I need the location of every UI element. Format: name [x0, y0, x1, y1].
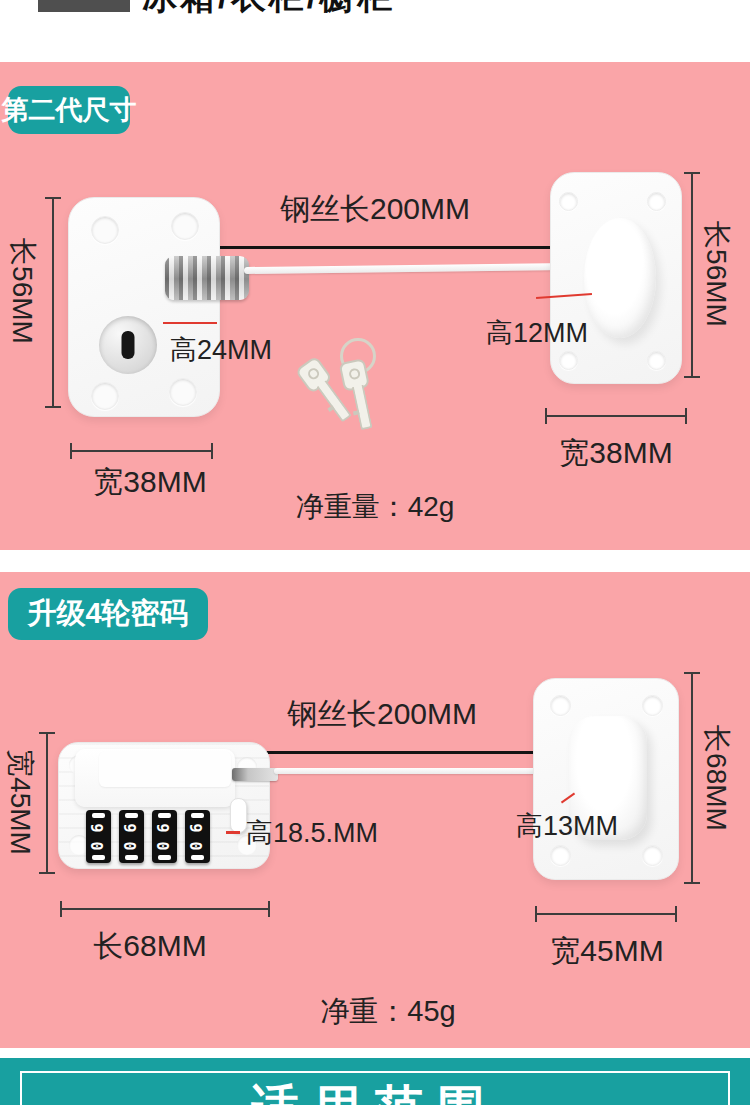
- net-weight-label-2: 净重：45g: [320, 992, 455, 1032]
- section1-title-badge: 第二代尺寸: [8, 86, 130, 134]
- code-dial-wheel: 6 0: [119, 810, 144, 863]
- wire-length-label-1: 钢丝长200MM: [280, 189, 470, 230]
- code-dial-wheel: 6 0: [86, 810, 111, 863]
- dial-digit: 6: [124, 823, 140, 832]
- dim-line-left-1: [52, 197, 54, 408]
- screw-hole: [169, 378, 197, 406]
- screw-hole: [647, 192, 666, 211]
- dim-line-bottom-right-1: [545, 415, 687, 417]
- steel-cable-1: [244, 263, 574, 274]
- dial-digit: 0: [190, 841, 206, 850]
- latch-button: [230, 798, 247, 833]
- screw-hole: [550, 695, 571, 716]
- code-dials: 6 0 6 0 6 0 6 0: [86, 810, 210, 863]
- screw-hole: [559, 192, 578, 211]
- side-length-label-right-2: 长68MM: [697, 725, 735, 831]
- dial-digit: 0: [157, 841, 173, 850]
- section-gen2-dimensions: 第二代尺寸 钢丝长200MM 高24MM: [0, 62, 750, 550]
- net-weight-label-1: 净重量：42g: [296, 488, 455, 526]
- dial-digit: 0: [91, 841, 107, 850]
- screw-hole: [642, 695, 663, 716]
- side-width-label-left-2: 宽45MM: [1, 749, 39, 855]
- product-dimension-infographic: 冰箱/衣柜/橱柜 第二代尺寸 钢丝长200MM 高24MM: [0, 0, 750, 1105]
- anchor-plate-2: [533, 678, 679, 880]
- wire-length-label-2: 钢丝长200MM: [287, 694, 477, 735]
- keyhole: [99, 316, 157, 374]
- cable-pin: [232, 768, 278, 781]
- top-clipped-text: 冰箱/衣柜/橱柜: [142, 0, 395, 20]
- combo-lock-flap: [99, 751, 231, 787]
- length-label-bottom-2: 长68MM: [93, 926, 206, 967]
- bottom-banner: 适用范围: [0, 1058, 750, 1105]
- lock-height-label-1: 高24MM: [170, 332, 272, 368]
- screw-hole: [559, 351, 578, 370]
- wire-pointer-line-2: [228, 751, 538, 754]
- side-length-label-right-1: 长56MM: [697, 221, 735, 327]
- section-gap: [0, 550, 750, 572]
- screw-hole: [91, 216, 119, 244]
- top-clipped-label-box: [38, 0, 130, 12]
- screw-hole: [550, 845, 571, 866]
- width-label-right-1: 宽38MM: [559, 433, 672, 474]
- dim-line-left-2: [46, 732, 48, 874]
- dial-digit: 0: [124, 841, 140, 850]
- keyed-lock-plate: [68, 197, 220, 417]
- anchor-plate-1: [550, 172, 682, 384]
- section2-title-badge: 升级4轮密码: [8, 588, 208, 640]
- anchor-height-label-1: 高12MM: [486, 315, 588, 351]
- dim-line-bottom-left-1: [70, 450, 213, 452]
- height-pointer-red-3: [226, 831, 240, 834]
- code-dial-wheel: 6 0: [152, 810, 177, 863]
- anchor-dome-1: [584, 218, 656, 338]
- screw-hole: [91, 382, 119, 410]
- wire-pointer-line-1: [173, 246, 577, 249]
- dim-line-right-1: [691, 172, 693, 378]
- cable-connector-barrel: [165, 256, 249, 300]
- top-clipped-strip: 冰箱/衣柜/橱柜: [0, 0, 750, 62]
- width-label-bottom-2: 宽45MM: [550, 931, 663, 972]
- section-gap: [0, 1048, 750, 1058]
- anchor-height-label-2: 高13MM: [516, 808, 618, 844]
- dim-line-bottom-right-2: [535, 913, 677, 915]
- dial-digit: 6: [190, 823, 206, 832]
- dim-line-bottom-left-2: [60, 908, 270, 910]
- screw-hole: [647, 351, 666, 370]
- code-dial-wheel: 6 0: [185, 810, 210, 863]
- section-4digit-code: 升级4轮密码 钢丝长200MM 6 0 6 0 6 0: [0, 572, 750, 1048]
- lock-height-label-2: 高18.5.MM: [246, 815, 378, 851]
- steel-cable-2: [274, 768, 566, 774]
- width-label-left-1: 宽38MM: [93, 462, 206, 503]
- screw-hole: [642, 845, 663, 866]
- banner-title: 适用范围: [251, 1084, 499, 1105]
- screw-hole: [171, 212, 199, 240]
- dim-line-right-2: [691, 672, 693, 884]
- side-length-label-left-1: 长56MM: [3, 238, 41, 344]
- keys-photo: [312, 338, 402, 448]
- dial-digit: 6: [91, 823, 107, 832]
- height-pointer-red-1: [163, 322, 217, 324]
- dial-digit: 6: [157, 823, 173, 832]
